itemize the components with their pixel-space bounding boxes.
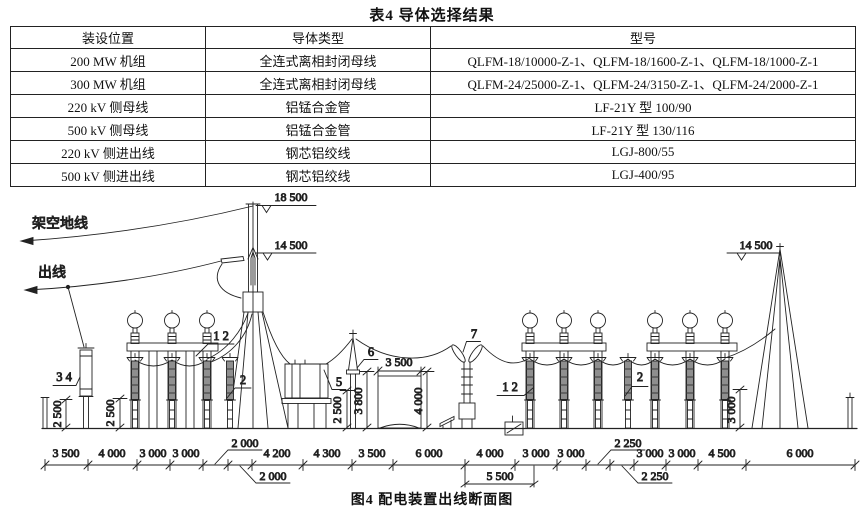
svg-text:2 000: 2 000	[232, 436, 259, 450]
callout-3-4: 3 4	[53, 370, 80, 386]
cell-type: 全连式离相封闭母线	[206, 72, 431, 95]
dim-2500-left-b: 2 500	[103, 395, 127, 431]
svg-text:2 500: 2 500	[103, 400, 117, 427]
post-insulator-stack	[590, 354, 606, 429]
post-insulator-stack	[682, 354, 698, 429]
svg-text:3 800: 3 800	[351, 388, 365, 415]
col-header-model: 型号	[431, 27, 856, 49]
document-page: { "table": { "title": "表4 导体选择结果", "colu…	[0, 0, 864, 516]
dim-label: 3 500	[53, 446, 80, 460]
cell-type: 铝锰合金管	[206, 95, 431, 118]
svg-text:2 000: 2 000	[260, 469, 287, 483]
outgoing-line-label: 出线	[38, 265, 66, 281]
dim-label: 3 000	[173, 446, 200, 460]
col-header-conductor-type: 导体类型	[206, 27, 431, 49]
dim-label: 4 000	[477, 446, 504, 460]
cell-model: LGJ-400/95	[431, 164, 856, 187]
bottom-dimension-line: 3 500 4 000 3 000 3 000 4 200 4 300 3 50…	[41, 446, 859, 471]
dim-label: 3 000	[523, 446, 550, 460]
svg-text:2 500: 2 500	[330, 397, 344, 424]
svg-text:14 500: 14 500	[740, 238, 773, 252]
voltage-transformer	[78, 344, 94, 429]
bushing-insulator	[557, 311, 572, 344]
svg-text:7: 7	[471, 327, 477, 341]
svg-text:3 4: 3 4	[56, 370, 72, 384]
svg-text:1 2: 1 2	[213, 329, 229, 343]
svg-text:5 500: 5 500	[487, 469, 514, 483]
earthing-symbol	[505, 416, 523, 435]
svg-text:1 2: 1 2	[502, 380, 518, 394]
overhead-ground-wire-label: 架空地线	[32, 216, 88, 232]
dim-label: 4 000	[99, 446, 126, 460]
svg-text:2: 2	[240, 373, 246, 387]
svg-text:4 000: 4 000	[411, 388, 425, 415]
dim-4000: 4 000	[411, 368, 434, 431]
dim-label: 3 000	[558, 446, 585, 460]
bushing-insulator	[165, 311, 180, 344]
switch-cabinet-structure	[263, 312, 331, 428]
overhead-ground-wire: 架空地线	[21, 206, 253, 245]
dim-label: 6 000	[416, 446, 443, 460]
elevation-marker-18500: 18 500	[256, 190, 316, 213]
right-equipment-bay-a	[522, 311, 606, 429]
dim-label: 3 500	[359, 446, 386, 460]
svg-text:2 250: 2 250	[642, 469, 669, 483]
cell-type: 钢芯铝绞线	[206, 141, 431, 164]
dim-2250-below: 2 250	[622, 466, 672, 483]
table-row: 200 MW 机组 全连式离相封闭母线 QLFM-18/10000-Z-1、QL…	[11, 49, 856, 72]
dim-label: 6 000	[787, 446, 814, 460]
table-row: 220 kV 侧进出线 钢芯铝绞线 LGJ-800/55	[11, 141, 856, 164]
cell-location: 200 MW 机组	[11, 49, 206, 72]
post-insulator-stack	[127, 354, 143, 429]
cell-model: QLFM-24/25000-Z-1、QLFM-24/3150-Z-1、QLFM-…	[431, 72, 856, 95]
table-row: 500 kV 侧母线 铝锰合金管 LF-21Y 型 130/116	[11, 118, 856, 141]
bushing-insulator	[718, 311, 733, 344]
conductor-spans	[356, 329, 775, 365]
dim-2500-left-a: 2 500	[50, 396, 72, 431]
cell-model: LF-21Y 型 100/90	[431, 95, 856, 118]
svg-text:2 250: 2 250	[615, 436, 642, 450]
table-row: 500 kV 侧进出线 钢芯铝绞线 LGJ-400/95	[11, 164, 856, 187]
post-insulator-stack	[164, 354, 180, 429]
elevation-marker-14500-right: 14 500	[727, 238, 779, 260]
svg-text:2: 2	[637, 370, 643, 384]
cell-model: LGJ-800/55	[431, 141, 856, 164]
small-stand	[440, 417, 454, 429]
cell-model: QLFM-18/10000-Z-1、QLFM-18/1600-Z-1、QLFM-…	[431, 49, 856, 72]
elevation-marker-14500-left: 14 500	[256, 238, 316, 260]
col-header-location: 装设位置	[11, 27, 206, 49]
dim-label: 3 000	[669, 446, 696, 460]
bushing-insulator	[128, 311, 143, 344]
post-insulator-stack-mid	[620, 354, 636, 429]
bushing-insulator	[683, 311, 698, 344]
bushing-insulator	[523, 311, 538, 344]
outgoing-line: 出线	[25, 261, 221, 347]
post-insulator-stack	[647, 354, 663, 429]
dim-5500-bracket: 5 500	[461, 466, 538, 487]
right-fence-post	[846, 393, 854, 428]
svg-text:2 500: 2 500	[50, 401, 64, 428]
cell-model: LF-21Y 型 130/116	[431, 118, 856, 141]
cell-location: 300 MW 机组	[11, 72, 206, 95]
post-insulator-stack	[222, 354, 238, 429]
dim-2000-below: 2 000	[240, 466, 290, 483]
svg-text:18 500: 18 500	[275, 190, 308, 204]
dim-label: 4 500	[709, 446, 736, 460]
cell-type: 钢芯铝绞线	[206, 164, 431, 187]
post-insulator-stack	[556, 354, 572, 429]
table-header-row: 装设位置 导体类型 型号	[11, 27, 856, 49]
cell-location: 220 kV 侧母线	[11, 95, 206, 118]
table-row: 220 kV 侧母线 铝锰合金管 LF-21Y 型 100/90	[11, 95, 856, 118]
left-fence-post	[41, 398, 49, 429]
dim-label: 4 300	[314, 446, 341, 460]
cell-type: 铝锰合金管	[206, 118, 431, 141]
cell-location: 500 kV 侧母线	[11, 118, 206, 141]
svg-text:14 500: 14 500	[275, 238, 308, 252]
svg-text:5: 5	[336, 375, 342, 389]
left-equipment-bay	[127, 311, 252, 429]
v-string-support	[450, 343, 485, 428]
callout-5: 5	[324, 370, 346, 390]
right-a-frame-tower	[752, 244, 808, 429]
callout-6: 6	[357, 345, 378, 368]
bushing-insulator	[648, 311, 663, 344]
callout-7: 7	[463, 327, 481, 352]
dim-3800: 3 800	[351, 368, 374, 431]
svg-text:3 000: 3 000	[724, 397, 738, 424]
conductor-selection-table: 装设位置 导体类型 型号 200 MW 机组 全连式离相封闭母线 QLFM-18…	[10, 26, 856, 187]
table-title: 表4 导体选择结果	[0, 4, 864, 25]
cell-location: 220 kV 侧进出线	[11, 141, 206, 164]
bushing-insulator	[591, 311, 606, 344]
cell-location: 500 kV 侧进出线	[11, 164, 206, 187]
substation-section-diagram: 架空地线 出线 18 500 14 500 14 500	[0, 186, 864, 500]
cell-type: 全连式离相封闭母线	[206, 49, 431, 72]
dim-2000-above: 2 000	[215, 436, 262, 464]
table-row: 300 MW 机组 全连式离相封闭母线 QLFM-24/25000-Z-1、QL…	[11, 72, 856, 95]
post-insulator-stack	[199, 354, 215, 429]
figure-caption: 图4 配电装置出线断面图	[0, 489, 864, 509]
dim-label: 4 200	[264, 446, 291, 460]
dim-label: 3 000	[140, 446, 167, 460]
